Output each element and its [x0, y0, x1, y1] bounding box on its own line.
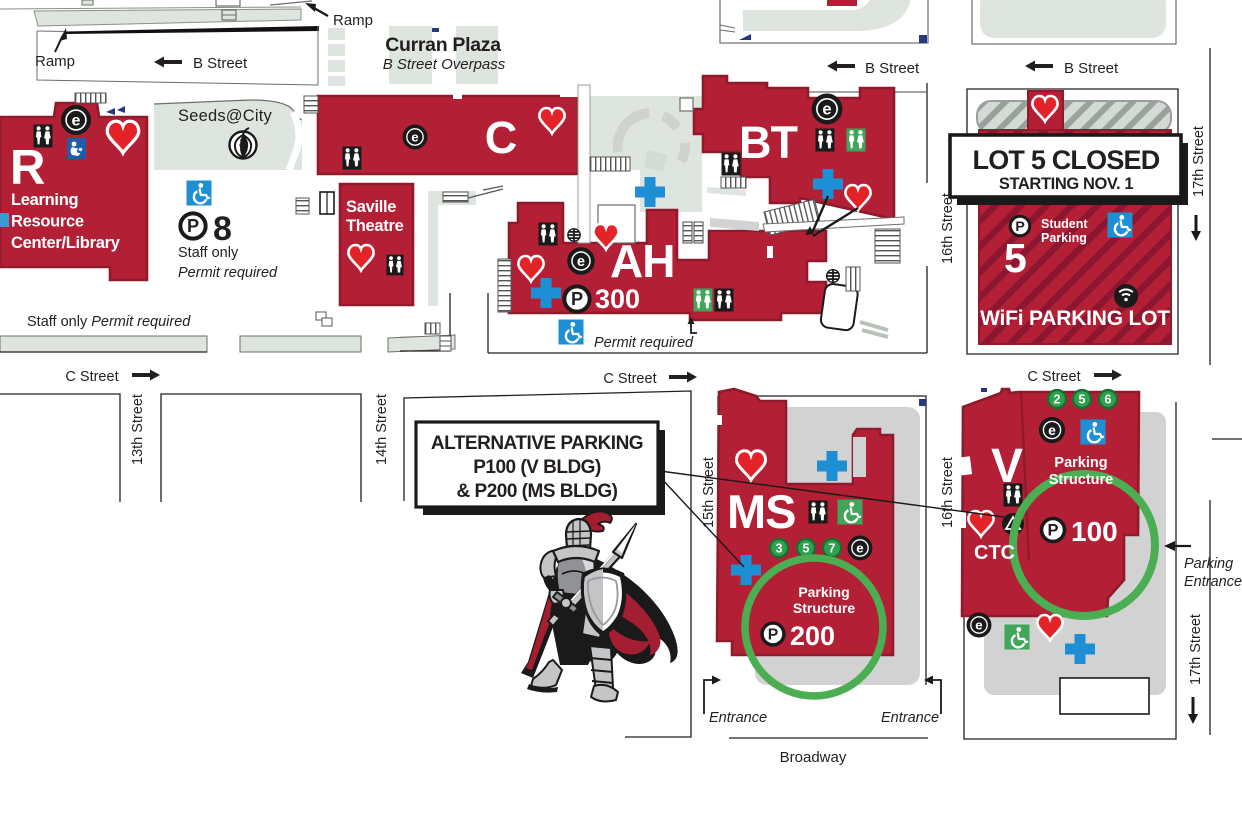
svg-text:P100 (V BLDG): P100 (V BLDG): [473, 457, 601, 478]
svg-text:200: 200: [790, 621, 835, 651]
svg-text:Saville: Saville: [346, 198, 396, 216]
svg-text:B Street Overpass: B Street Overpass: [383, 56, 506, 73]
svg-text:Center/Library: Center/Library: [11, 234, 121, 252]
svg-text:16th Street: 16th Street: [940, 193, 956, 264]
svg-text:2: 2: [1054, 393, 1061, 407]
svg-text:8: 8: [213, 210, 232, 248]
svg-text:Parking: Parking: [1184, 556, 1233, 572]
svg-text:Structure: Structure: [793, 600, 855, 616]
svg-text:MS: MS: [727, 485, 796, 538]
svg-text:Permit required: Permit required: [594, 335, 694, 351]
svg-text:Entrance: Entrance: [1184, 574, 1242, 590]
svg-text:C Street: C Street: [603, 371, 656, 387]
svg-text:Seeds@City: Seeds@City: [178, 107, 273, 125]
svg-text:100: 100: [1071, 516, 1118, 547]
svg-text:15th Street: 15th Street: [701, 457, 717, 528]
svg-text:B Street: B Street: [865, 60, 920, 77]
svg-text:C Street: C Street: [65, 369, 118, 385]
svg-text:C: C: [485, 112, 518, 163]
svg-text:Ramp: Ramp: [333, 12, 373, 29]
svg-text:C Street: C Street: [1027, 369, 1080, 385]
svg-text:6: 6: [1105, 393, 1112, 407]
svg-text:B Street: B Street: [193, 55, 248, 72]
svg-text:7: 7: [829, 542, 836, 556]
svg-text:Student: Student: [1041, 217, 1088, 231]
svg-text:3: 3: [776, 542, 783, 556]
svg-text:16th Street: 16th Street: [940, 457, 956, 528]
svg-text:Staff only Permit required: Staff only Permit required: [27, 314, 191, 330]
svg-text:Curran Plaza: Curran Plaza: [385, 34, 501, 56]
svg-text:Staff only: Staff only: [178, 245, 239, 261]
svg-text:Structure: Structure: [1049, 472, 1113, 488]
svg-text:Theatre: Theatre: [346, 217, 404, 235]
svg-text:CTC: CTC: [974, 542, 1015, 564]
svg-text:LOT 5 CLOSED: LOT 5 CLOSED: [973, 145, 1160, 175]
svg-text:5: 5: [1079, 393, 1086, 407]
svg-text:Ramp: Ramp: [35, 53, 75, 70]
svg-text:Entrance: Entrance: [709, 710, 767, 726]
svg-text:Broadway: Broadway: [780, 749, 847, 766]
svg-text:STARTING NOV. 1: STARTING NOV. 1: [999, 175, 1133, 193]
svg-text:WiFi PARKING LOT: WiFi PARKING LOT: [980, 307, 1170, 330]
svg-text:Entrance: Entrance: [881, 710, 939, 726]
svg-text:Parking: Parking: [1041, 231, 1087, 245]
svg-text:5: 5: [803, 542, 810, 556]
svg-text:Resource: Resource: [11, 213, 84, 231]
svg-text:17th Street: 17th Street: [1188, 614, 1204, 685]
svg-text:B Street: B Street: [1064, 60, 1119, 77]
svg-text:AH: AH: [610, 235, 674, 287]
svg-text:BT: BT: [739, 117, 797, 168]
svg-text:5: 5: [1004, 235, 1027, 281]
svg-text:Learning: Learning: [11, 191, 78, 209]
svg-text:& P200 (MS BLDG): & P200 (MS BLDG): [457, 481, 618, 502]
svg-text:300: 300: [595, 284, 640, 314]
svg-text:Parking: Parking: [1054, 455, 1107, 471]
svg-text:14th Street: 14th Street: [374, 394, 390, 465]
svg-text:Permit required: Permit required: [178, 265, 278, 281]
svg-text:13th Street: 13th Street: [130, 394, 146, 465]
svg-text:Parking: Parking: [798, 584, 849, 600]
svg-text:17th Street: 17th Street: [1191, 126, 1207, 197]
svg-text:ALTERNATIVE PARKING: ALTERNATIVE PARKING: [431, 433, 643, 454]
svg-text:R: R: [10, 141, 45, 195]
svg-text:V: V: [991, 440, 1023, 493]
